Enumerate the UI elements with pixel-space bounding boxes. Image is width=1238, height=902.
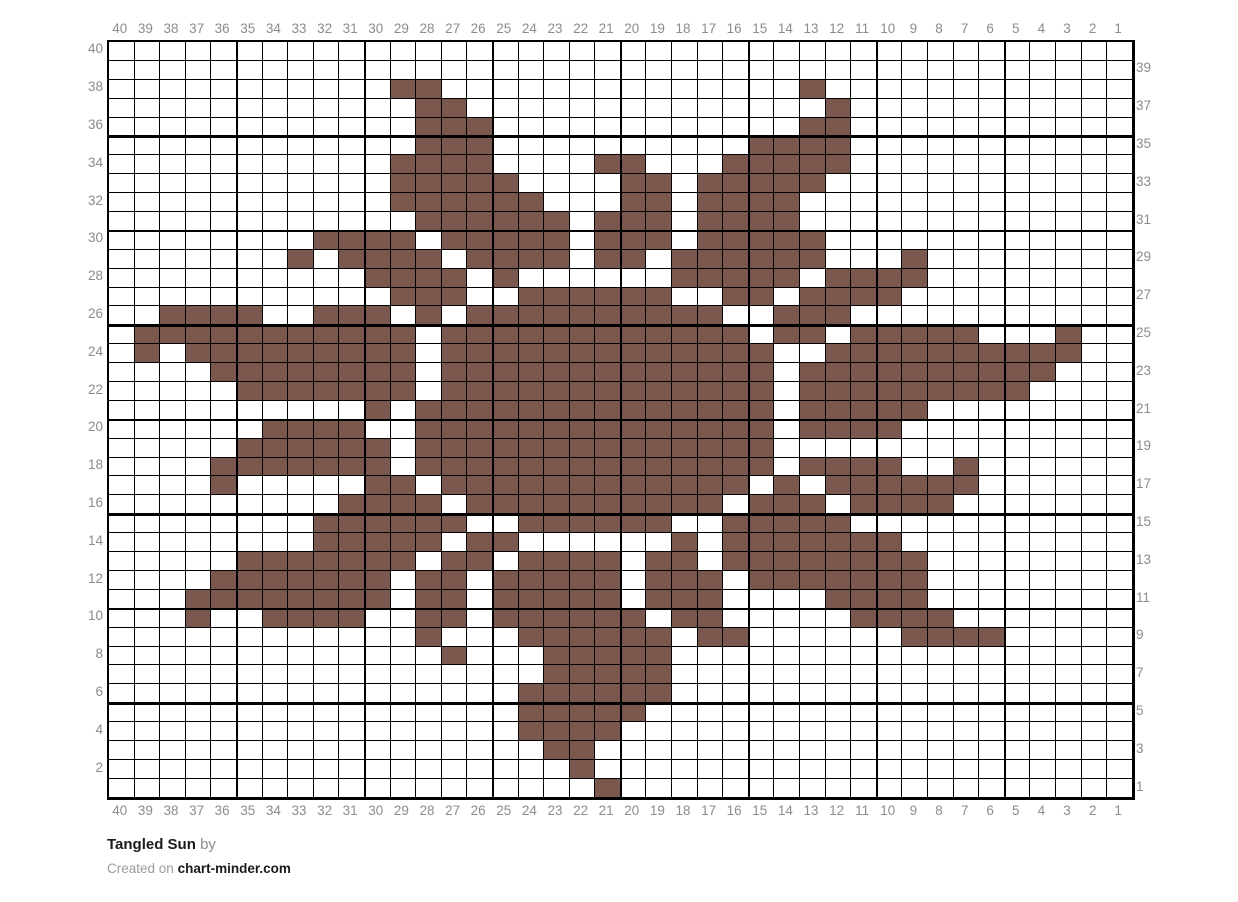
- grid-cell[interactable]: [211, 174, 237, 193]
- grid-cell[interactable]: [109, 174, 135, 193]
- grid-cell[interactable]: [365, 382, 391, 401]
- grid-cell[interactable]: [339, 665, 365, 684]
- grid-cell[interactable]: [979, 665, 1005, 684]
- grid-cell[interactable]: [237, 344, 263, 363]
- grid-cell[interactable]: [339, 458, 365, 477]
- grid-cell[interactable]: [519, 250, 545, 269]
- grid-cell[interactable]: [1005, 420, 1031, 439]
- grid-cell[interactable]: [391, 590, 417, 609]
- grid-cell[interactable]: [595, 420, 621, 439]
- grid-cell[interactable]: [646, 136, 672, 155]
- grid-cell[interactable]: [902, 609, 928, 628]
- grid-cell[interactable]: [442, 647, 468, 666]
- grid-cell[interactable]: [774, 174, 800, 193]
- grid-cell[interactable]: [723, 458, 749, 477]
- grid-cell[interactable]: [467, 401, 493, 420]
- grid-cell[interactable]: [160, 269, 186, 288]
- grid-cell[interactable]: [263, 665, 289, 684]
- grid-cell[interactable]: [595, 571, 621, 590]
- grid-cell[interactable]: [314, 155, 340, 174]
- grid-cell[interactable]: [979, 684, 1005, 703]
- grid-cell[interactable]: [211, 514, 237, 533]
- grid-cell[interactable]: [467, 174, 493, 193]
- grid-cell[interactable]: [1107, 439, 1133, 458]
- grid-cell[interactable]: [621, 250, 647, 269]
- grid-cell[interactable]: [698, 212, 724, 231]
- grid-cell[interactable]: [237, 665, 263, 684]
- grid-cell[interactable]: [749, 760, 775, 779]
- grid-cell[interactable]: [1005, 476, 1031, 495]
- grid-cell[interactable]: [646, 760, 672, 779]
- grid-cell[interactable]: [1107, 628, 1133, 647]
- grid-cell[interactable]: [339, 155, 365, 174]
- grid-cell[interactable]: [237, 363, 263, 382]
- grid-cell[interactable]: [954, 476, 980, 495]
- grid-cell[interactable]: [493, 760, 519, 779]
- grid-cell[interactable]: [339, 42, 365, 61]
- grid-cell[interactable]: [800, 382, 826, 401]
- grid-cell[interactable]: [1056, 212, 1082, 231]
- grid-cell[interactable]: [160, 118, 186, 137]
- grid-cell[interactable]: [416, 495, 442, 514]
- grid-cell[interactable]: [979, 231, 1005, 250]
- grid-cell[interactable]: [365, 533, 391, 552]
- grid-cell[interactable]: [851, 495, 877, 514]
- grid-cell[interactable]: [800, 212, 826, 231]
- grid-cell[interactable]: [467, 628, 493, 647]
- grid-cell[interactable]: [1082, 590, 1108, 609]
- grid-cell[interactable]: [1005, 684, 1031, 703]
- grid-cell[interactable]: [621, 80, 647, 99]
- grid-cell[interactable]: [519, 609, 545, 628]
- grid-cell[interactable]: [1107, 363, 1133, 382]
- grid-cell[interactable]: [1107, 741, 1133, 760]
- grid-cell[interactable]: [902, 684, 928, 703]
- grid-cell[interactable]: [851, 212, 877, 231]
- grid-cell[interactable]: [723, 306, 749, 325]
- grid-cell[interactable]: [442, 325, 468, 344]
- grid-cell[interactable]: [749, 325, 775, 344]
- grid-cell[interactable]: [902, 647, 928, 666]
- grid-cell[interactable]: [1107, 647, 1133, 666]
- grid-cell[interactable]: [1082, 458, 1108, 477]
- grid-cell[interactable]: [391, 628, 417, 647]
- grid-cell[interactable]: [160, 363, 186, 382]
- grid-cell[interactable]: [365, 174, 391, 193]
- grid-cell[interactable]: [826, 514, 852, 533]
- grid-cell[interactable]: [160, 193, 186, 212]
- grid-cell[interactable]: [570, 99, 596, 118]
- grid-cell[interactable]: [877, 344, 903, 363]
- grid-cell[interactable]: [749, 250, 775, 269]
- grid-cell[interactable]: [749, 118, 775, 137]
- grid-cell[interactable]: [595, 590, 621, 609]
- grid-cell[interactable]: [391, 99, 417, 118]
- grid-cell[interactable]: [1082, 363, 1108, 382]
- grid-cell[interactable]: [1030, 760, 1056, 779]
- grid-cell[interactable]: [237, 193, 263, 212]
- grid-cell[interactable]: [442, 99, 468, 118]
- grid-cell[interactable]: [1082, 609, 1108, 628]
- grid-cell[interactable]: [698, 628, 724, 647]
- grid-cell[interactable]: [672, 779, 698, 798]
- grid-cell[interactable]: [774, 99, 800, 118]
- grid-cell[interactable]: [800, 174, 826, 193]
- grid-cell[interactable]: [160, 212, 186, 231]
- grid-cell[interactable]: [160, 382, 186, 401]
- grid-cell[interactable]: [160, 439, 186, 458]
- grid-cell[interactable]: [288, 495, 314, 514]
- grid-cell[interactable]: [493, 779, 519, 798]
- grid-cell[interactable]: [467, 741, 493, 760]
- grid-cell[interactable]: [186, 288, 212, 307]
- grid-cell[interactable]: [1056, 401, 1082, 420]
- grid-cell[interactable]: [621, 760, 647, 779]
- grid-cell[interactable]: [621, 174, 647, 193]
- grid-cell[interactable]: [954, 741, 980, 760]
- grid-cell[interactable]: [621, 609, 647, 628]
- grid-cell[interactable]: [826, 80, 852, 99]
- grid-cell[interactable]: [954, 628, 980, 647]
- grid-cell[interactable]: [928, 136, 954, 155]
- grid-cell[interactable]: [877, 42, 903, 61]
- grid-cell[interactable]: [723, 495, 749, 514]
- grid-cell[interactable]: [621, 779, 647, 798]
- grid-cell[interactable]: [672, 118, 698, 137]
- grid-cell[interactable]: [1030, 647, 1056, 666]
- grid-cell[interactable]: [1030, 476, 1056, 495]
- grid-cell[interactable]: [698, 552, 724, 571]
- grid-cell[interactable]: [442, 665, 468, 684]
- grid-cell[interactable]: [902, 665, 928, 684]
- grid-cell[interactable]: [211, 155, 237, 174]
- grid-cell[interactable]: [109, 722, 135, 741]
- grid-cell[interactable]: [467, 269, 493, 288]
- grid-cell[interactable]: [698, 514, 724, 533]
- grid-cell[interactable]: [365, 269, 391, 288]
- grid-cell[interactable]: [135, 231, 161, 250]
- grid-cell[interactable]: [646, 99, 672, 118]
- grid-cell[interactable]: [928, 571, 954, 590]
- grid-cell[interactable]: [800, 533, 826, 552]
- grid-cell[interactable]: [365, 647, 391, 666]
- grid-cell[interactable]: [621, 118, 647, 137]
- grid-cell[interactable]: [800, 722, 826, 741]
- grid-cell[interactable]: [211, 458, 237, 477]
- grid-cell[interactable]: [595, 779, 621, 798]
- grid-cell[interactable]: [877, 647, 903, 666]
- grid-cell[interactable]: [1107, 269, 1133, 288]
- grid-cell[interactable]: [570, 193, 596, 212]
- grid-cell[interactable]: [237, 779, 263, 798]
- grid-cell[interactable]: [391, 647, 417, 666]
- grid-cell[interactable]: [698, 703, 724, 722]
- grid-cell[interactable]: [851, 458, 877, 477]
- grid-cell[interactable]: [877, 514, 903, 533]
- grid-cell[interactable]: [979, 495, 1005, 514]
- grid-cell[interactable]: [493, 250, 519, 269]
- grid-cell[interactable]: [1030, 571, 1056, 590]
- grid-cell[interactable]: [544, 760, 570, 779]
- grid-cell[interactable]: [979, 61, 1005, 80]
- grid-cell[interactable]: [109, 647, 135, 666]
- grid-cell[interactable]: [749, 665, 775, 684]
- grid-cell[interactable]: [365, 476, 391, 495]
- grid-cell[interactable]: [1056, 760, 1082, 779]
- grid-cell[interactable]: [1082, 306, 1108, 325]
- grid-cell[interactable]: [672, 136, 698, 155]
- grid-cell[interactable]: [621, 306, 647, 325]
- grid-cell[interactable]: [288, 665, 314, 684]
- grid-cell[interactable]: [774, 61, 800, 80]
- grid-cell[interactable]: [800, 231, 826, 250]
- grid-cell[interactable]: [826, 325, 852, 344]
- grid-cell[interactable]: [1056, 382, 1082, 401]
- grid-cell[interactable]: [774, 401, 800, 420]
- grid-cell[interactable]: [1005, 80, 1031, 99]
- grid-cell[interactable]: [1107, 401, 1133, 420]
- grid-cell[interactable]: [672, 363, 698, 382]
- grid-cell[interactable]: [237, 514, 263, 533]
- grid-cell[interactable]: [519, 363, 545, 382]
- grid-cell[interactable]: [186, 363, 212, 382]
- grid-cell[interactable]: [160, 136, 186, 155]
- grid-cell[interactable]: [1082, 571, 1108, 590]
- grid-cell[interactable]: [954, 42, 980, 61]
- grid-cell[interactable]: [774, 344, 800, 363]
- grid-cell[interactable]: [109, 382, 135, 401]
- grid-cell[interactable]: [237, 609, 263, 628]
- grid-cell[interactable]: [416, 250, 442, 269]
- grid-cell[interactable]: [749, 363, 775, 382]
- grid-cell[interactable]: [314, 136, 340, 155]
- grid-cell[interactable]: [288, 61, 314, 80]
- grid-cell[interactable]: [135, 212, 161, 231]
- grid-cell[interactable]: [723, 533, 749, 552]
- grid-cell[interactable]: [135, 193, 161, 212]
- grid-cell[interactable]: [314, 42, 340, 61]
- grid-cell[interactable]: [1107, 779, 1133, 798]
- grid-cell[interactable]: [314, 703, 340, 722]
- grid-cell[interactable]: [519, 665, 545, 684]
- grid-cell[interactable]: [493, 741, 519, 760]
- grid-cell[interactable]: [467, 250, 493, 269]
- grid-cell[interactable]: [391, 779, 417, 798]
- grid-cell[interactable]: [288, 533, 314, 552]
- grid-cell[interactable]: [339, 609, 365, 628]
- grid-cell[interactable]: [365, 779, 391, 798]
- grid-cell[interactable]: [570, 495, 596, 514]
- grid-cell[interactable]: [1107, 382, 1133, 401]
- grid-cell[interactable]: [109, 533, 135, 552]
- grid-cell[interactable]: [186, 306, 212, 325]
- grid-cell[interactable]: [160, 80, 186, 99]
- grid-cell[interactable]: [1107, 571, 1133, 590]
- grid-cell[interactable]: [416, 269, 442, 288]
- grid-cell[interactable]: [211, 533, 237, 552]
- grid-cell[interactable]: [800, 439, 826, 458]
- grid-cell[interactable]: [800, 476, 826, 495]
- grid-cell[interactable]: [672, 609, 698, 628]
- grid-cell[interactable]: [416, 80, 442, 99]
- grid-cell[interactable]: [774, 212, 800, 231]
- grid-cell[interactable]: [979, 533, 1005, 552]
- grid-cell[interactable]: [416, 212, 442, 231]
- grid-cell[interactable]: [416, 136, 442, 155]
- grid-cell[interactable]: [263, 571, 289, 590]
- grid-cell[interactable]: [493, 99, 519, 118]
- grid-cell[interactable]: [672, 458, 698, 477]
- grid-cell[interactable]: [211, 439, 237, 458]
- grid-cell[interactable]: [749, 42, 775, 61]
- grid-cell[interactable]: [877, 684, 903, 703]
- grid-cell[interactable]: [160, 760, 186, 779]
- grid-cell[interactable]: [416, 306, 442, 325]
- grid-cell[interactable]: [237, 231, 263, 250]
- grid-cell[interactable]: [288, 439, 314, 458]
- grid-cell[interactable]: [595, 363, 621, 382]
- grid-cell[interactable]: [902, 722, 928, 741]
- grid-cell[interactable]: [1056, 476, 1082, 495]
- grid-cell[interactable]: [826, 458, 852, 477]
- grid-cell[interactable]: [237, 439, 263, 458]
- grid-cell[interactable]: [1056, 779, 1082, 798]
- grid-cell[interactable]: [954, 306, 980, 325]
- grid-cell[interactable]: [186, 174, 212, 193]
- grid-cell[interactable]: [186, 741, 212, 760]
- grid-cell[interactable]: [1082, 212, 1108, 231]
- grid-cell[interactable]: [467, 514, 493, 533]
- grid-cell[interactable]: [672, 344, 698, 363]
- grid-cell[interactable]: [749, 420, 775, 439]
- grid-cell[interactable]: [723, 628, 749, 647]
- grid-cell[interactable]: [1082, 552, 1108, 571]
- grid-cell[interactable]: [186, 212, 212, 231]
- grid-cell[interactable]: [365, 458, 391, 477]
- grid-cell[interactable]: [621, 476, 647, 495]
- grid-cell[interactable]: [109, 136, 135, 155]
- grid-cell[interactable]: [314, 628, 340, 647]
- grid-cell[interactable]: [109, 628, 135, 647]
- grid-cell[interactable]: [851, 401, 877, 420]
- grid-cell[interactable]: [570, 363, 596, 382]
- grid-cell[interactable]: [186, 779, 212, 798]
- grid-cell[interactable]: [467, 231, 493, 250]
- grid-cell[interactable]: [442, 174, 468, 193]
- grid-cell[interactable]: [851, 382, 877, 401]
- grid-cell[interactable]: [1056, 155, 1082, 174]
- grid-cell[interactable]: [519, 741, 545, 760]
- grid-cell[interactable]: [442, 363, 468, 382]
- grid-cell[interactable]: [288, 174, 314, 193]
- grid-cell[interactable]: [851, 665, 877, 684]
- grid-cell[interactable]: [928, 495, 954, 514]
- grid-cell[interactable]: [1107, 250, 1133, 269]
- grid-cell[interactable]: [646, 231, 672, 250]
- grid-cell[interactable]: [442, 118, 468, 137]
- grid-cell[interactable]: [365, 684, 391, 703]
- grid-cell[interactable]: [416, 231, 442, 250]
- grid-cell[interactable]: [391, 382, 417, 401]
- grid-cell[interactable]: [109, 609, 135, 628]
- grid-cell[interactable]: [928, 552, 954, 571]
- grid-cell[interactable]: [211, 703, 237, 722]
- grid-cell[interactable]: [135, 363, 161, 382]
- grid-cell[interactable]: [902, 118, 928, 137]
- grid-cell[interactable]: [263, 250, 289, 269]
- grid-cell[interactable]: [263, 174, 289, 193]
- grid-cell[interactable]: [544, 552, 570, 571]
- grid-cell[interactable]: [493, 42, 519, 61]
- grid-cell[interactable]: [442, 722, 468, 741]
- grid-cell[interactable]: [723, 684, 749, 703]
- grid-cell[interactable]: [1056, 647, 1082, 666]
- grid-cell[interactable]: [928, 722, 954, 741]
- grid-cell[interactable]: [391, 80, 417, 99]
- grid-cell[interactable]: [749, 61, 775, 80]
- grid-cell[interactable]: [442, 571, 468, 590]
- grid-cell[interactable]: [928, 665, 954, 684]
- grid-cell[interactable]: [1082, 665, 1108, 684]
- grid-cell[interactable]: [365, 212, 391, 231]
- grid-cell[interactable]: [314, 212, 340, 231]
- grid-cell[interactable]: [1005, 779, 1031, 798]
- grid-cell[interactable]: [544, 495, 570, 514]
- grid-cell[interactable]: [135, 552, 161, 571]
- grid-cell[interactable]: [467, 344, 493, 363]
- grid-cell[interactable]: [314, 552, 340, 571]
- grid-cell[interactable]: [288, 722, 314, 741]
- grid-cell[interactable]: [416, 779, 442, 798]
- grid-cell[interactable]: [902, 779, 928, 798]
- grid-cell[interactable]: [595, 212, 621, 231]
- grid-cell[interactable]: [621, 590, 647, 609]
- grid-cell[interactable]: [391, 61, 417, 80]
- grid-cell[interactable]: [621, 269, 647, 288]
- grid-cell[interactable]: [595, 476, 621, 495]
- grid-cell[interactable]: [1005, 212, 1031, 231]
- grid-cell[interactable]: [339, 174, 365, 193]
- grid-cell[interactable]: [519, 193, 545, 212]
- grid-cell[interactable]: [467, 136, 493, 155]
- grid-cell[interactable]: [851, 61, 877, 80]
- grid-cell[interactable]: [416, 476, 442, 495]
- grid-cell[interactable]: [749, 552, 775, 571]
- grid-cell[interactable]: [186, 382, 212, 401]
- grid-cell[interactable]: [954, 665, 980, 684]
- grid-cell[interactable]: [672, 231, 698, 250]
- grid-cell[interactable]: [621, 722, 647, 741]
- grid-cell[interactable]: [749, 590, 775, 609]
- grid-cell[interactable]: [135, 779, 161, 798]
- grid-cell[interactable]: [237, 647, 263, 666]
- grid-cell[interactable]: [723, 269, 749, 288]
- grid-cell[interactable]: [1107, 118, 1133, 137]
- grid-cell[interactable]: [135, 155, 161, 174]
- grid-cell[interactable]: [288, 760, 314, 779]
- grid-cell[interactable]: [544, 722, 570, 741]
- grid-cell[interactable]: [1107, 174, 1133, 193]
- grid-cell[interactable]: [826, 306, 852, 325]
- grid-cell[interactable]: [1107, 61, 1133, 80]
- grid-cell[interactable]: [237, 42, 263, 61]
- grid-cell[interactable]: [467, 363, 493, 382]
- grid-cell[interactable]: [595, 250, 621, 269]
- grid-cell[interactable]: [391, 609, 417, 628]
- grid-cell[interactable]: [263, 212, 289, 231]
- grid-cell[interactable]: [774, 760, 800, 779]
- site-link[interactable]: chart-minder.com: [178, 861, 291, 876]
